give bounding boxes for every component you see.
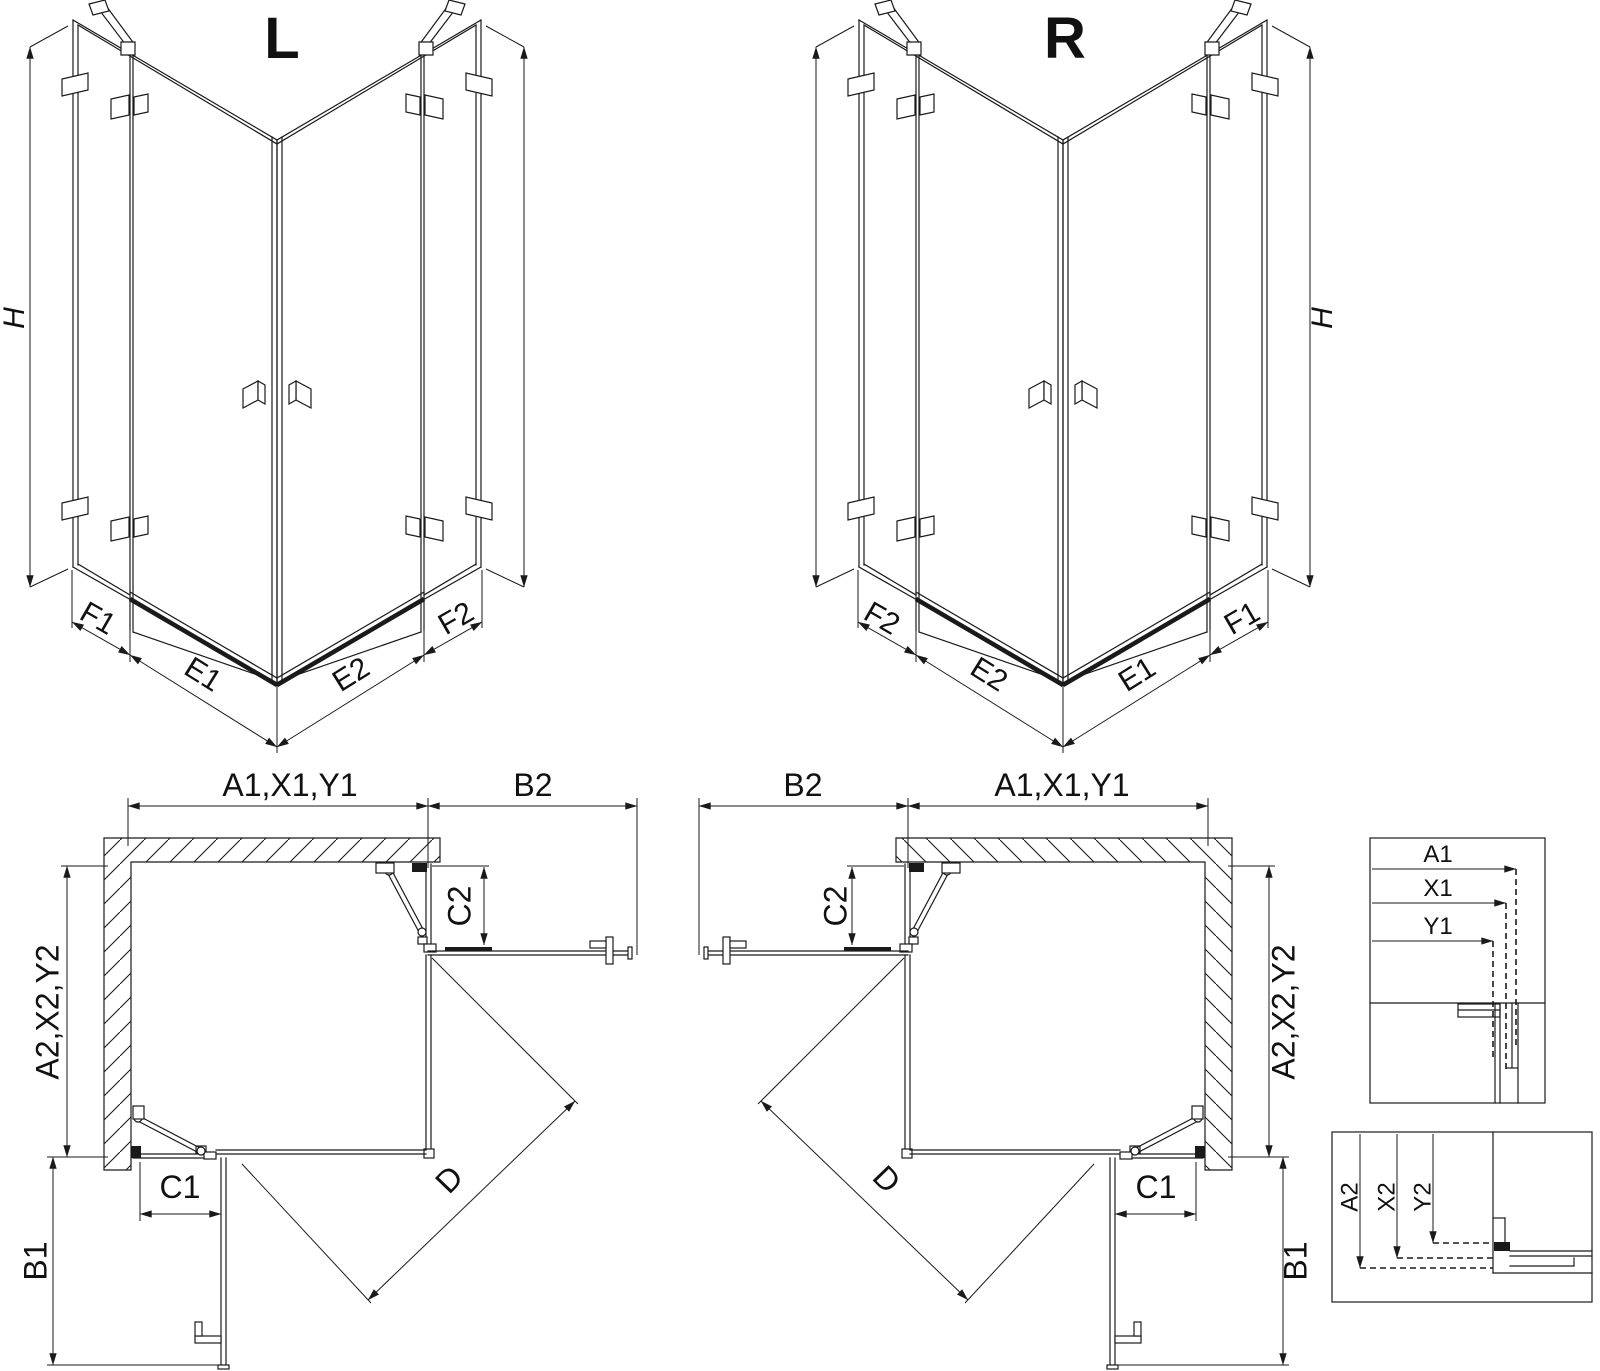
dim-label-a2x2y2-planright: A2,X2,Y2 bbox=[1265, 944, 1301, 1079]
dim-label-a1x1y1-planright: A1,X1,Y1 bbox=[994, 767, 1129, 803]
detail-label-a2: A2 bbox=[1336, 1182, 1363, 1211]
dim-label-e1-right: E1 bbox=[1113, 651, 1162, 698]
dim-label-d-planright: D bbox=[866, 1158, 908, 1200]
dim-label-f1-left: F1 bbox=[74, 596, 121, 642]
dim-label-b1-planright: B1 bbox=[1277, 1241, 1313, 1280]
diagram-canvas: L H F1 E1 E2 F2 R H F2 E2 E1 F1 A1,X1,Y1… bbox=[0, 0, 1600, 1371]
plan-view-right bbox=[699, 798, 1289, 1369]
dim-label-c2-planleft: C2 bbox=[441, 886, 477, 927]
detail-label-a1: A1 bbox=[1423, 841, 1452, 868]
detail-label-x2: X2 bbox=[1373, 1182, 1400, 1211]
dim-label-a1x1y1-planleft: A1,X1,Y1 bbox=[222, 767, 357, 803]
dim-label-e2-right: E2 bbox=[965, 651, 1014, 698]
plan-view-left bbox=[47, 798, 637, 1369]
detail-label-x1: X1 bbox=[1423, 875, 1452, 902]
variant-label-left: L bbox=[264, 6, 299, 71]
dim-label-d-planleft: D bbox=[428, 1158, 470, 1200]
dim-label-f1-right: F1 bbox=[1219, 596, 1266, 642]
detail-box-depths bbox=[1332, 1132, 1592, 1302]
detail-label-y2: Y2 bbox=[1409, 1182, 1436, 1211]
dim-label-f2-left: F2 bbox=[433, 596, 480, 642]
dim-label-c1-planleft: C1 bbox=[160, 1169, 201, 1205]
dim-label-b2-planright: B2 bbox=[783, 767, 822, 803]
variant-label-right: R bbox=[1044, 6, 1086, 71]
dim-label-b1-planleft: B1 bbox=[17, 1241, 53, 1280]
dim-label-a2x2y2-planleft: A2,X2,Y2 bbox=[29, 944, 65, 1079]
detail-box-widths bbox=[1370, 838, 1545, 1103]
shower-enclosure-technical-drawing: L H F1 E1 E2 F2 R H F2 E2 E1 F1 A1,X1,Y1… bbox=[0, 0, 1600, 1371]
dim-label-e2-left: E2 bbox=[327, 651, 376, 698]
dim-label-c2-planright: C2 bbox=[817, 886, 853, 927]
detail-label-y1: Y1 bbox=[1423, 913, 1452, 940]
dim-label-c1-planright: C1 bbox=[1136, 1169, 1177, 1205]
dim-label-b2-planleft: B2 bbox=[513, 767, 552, 803]
dim-label-h-left: H bbox=[0, 307, 31, 329]
dim-label-e1-left: E1 bbox=[179, 651, 228, 698]
dim-label-h-right: H bbox=[1306, 307, 1339, 329]
dim-label-f2-right: F2 bbox=[858, 596, 905, 642]
